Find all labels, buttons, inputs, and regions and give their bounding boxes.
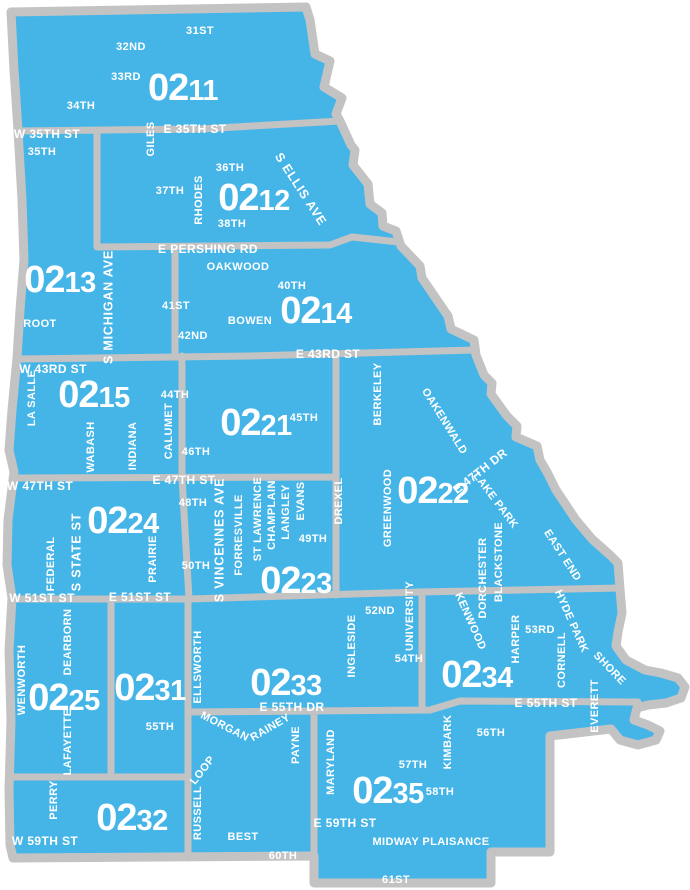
street-label-45th: 45TH	[290, 412, 319, 424]
street-label-harper: HARPER	[510, 615, 522, 664]
street-label-32nd: 32ND	[116, 41, 146, 53]
street-label-w-59th-st: W 59TH ST	[12, 834, 79, 848]
street-label-wabash: WABASH	[85, 421, 97, 472]
street-label-49th: 49TH	[299, 533, 328, 545]
street-label-48th: 48TH	[179, 497, 208, 509]
street-label-la-salle: LA SALLE	[26, 370, 38, 427]
street-label-56th: 56TH	[477, 727, 506, 739]
street-label-33rd: 33RD	[111, 71, 141, 83]
street-label-53rd: 53RD	[525, 624, 555, 636]
street-label-perry: PERRY	[48, 780, 60, 820]
street-label-rhodes: RHODES	[193, 175, 205, 224]
street-label-e-pershing-rd: E PERSHING RD	[158, 242, 258, 256]
street-label-langley: LANGLEY	[280, 484, 292, 540]
street-label-36th: 36TH	[216, 162, 245, 174]
street-label-44th: 44TH	[161, 389, 190, 401]
street-label-54th: 54TH	[395, 653, 424, 665]
street-label-60th: 60TH	[269, 850, 298, 862]
street-label-37th: 37TH	[156, 185, 185, 197]
street-label-38th: 38TH	[218, 218, 247, 230]
street-label-kimbark: KIMBARK	[442, 715, 454, 770]
street-label-best: BEST	[228, 831, 259, 843]
street-label-61st: 61ST	[382, 874, 410, 886]
street-label-blackstone: BLACKSTONE	[493, 522, 505, 602]
street-label-st-lawrence: ST LAWRENCE	[252, 477, 264, 561]
street-label-drexel: DREXEL	[333, 477, 345, 524]
street-label-ellsworth: ELLSWORTH	[192, 630, 204, 703]
street-label-dearborn: DEARBORN	[62, 609, 74, 676]
street-label-42nd: 42ND	[178, 330, 208, 342]
street-label-wenworth: WENWORTH	[16, 645, 28, 715]
street-label-maryland: MARYLAND	[325, 729, 337, 795]
street-label-w-47th-st: W 47TH ST	[7, 479, 74, 493]
street-label-giles: GILES	[145, 121, 157, 156]
street-label-52nd: 52ND	[365, 605, 395, 617]
street-label-midway-plaisance: MIDWAY PLAISANCE	[372, 836, 489, 848]
street-label-berkeley: BERKELEY	[372, 362, 384, 425]
street-label-e-55th-st: E 55TH ST	[515, 696, 578, 710]
street-label-prairie: PRAIRIE	[147, 535, 159, 582]
street-label-federal: FEDERAL	[45, 537, 57, 592]
street-label-e-35th-st: E 35TH ST	[164, 122, 227, 136]
street-label-w-35th-st: W 35TH ST	[14, 127, 81, 141]
street-label-dorchester: DORCHESTER	[477, 537, 489, 618]
street-label-35th: 35TH	[28, 146, 57, 158]
street-label-indiana: INDIANA	[127, 422, 139, 471]
street-label-ingleside: INGLESIDE	[346, 615, 358, 678]
street-label-s-vincennes-ave: S VINCENNES AVE	[212, 478, 226, 603]
street-label-greenwood: GREENWOOD	[382, 469, 394, 547]
street-label-31st: 31ST	[186, 25, 214, 37]
street-label-50th: 50TH	[182, 560, 211, 572]
street-label-e-47th-st: E 47TH ST	[153, 473, 216, 487]
street-label-calumet: CALUMET	[163, 403, 175, 460]
street-label-russell: RUSSELL	[192, 786, 204, 840]
street-label-w-51st-st: W 51ST ST	[9, 591, 75, 605]
street-label-university: UNIVERSITY	[404, 581, 416, 651]
street-label-57th: 57TH	[399, 759, 428, 771]
street-label-cornell: CORNELL	[556, 632, 568, 688]
street-label-s-michigan-ave: S MICHIGAN AVE	[101, 250, 115, 364]
street-label-e-51st-st: E 51ST ST	[109, 590, 172, 604]
beat-map-canvas: 31ST32ND33RD34THW 35TH STE 35TH STGILES3…	[0, 0, 690, 890]
street-label-champlain: CHAMPLAIN	[266, 480, 278, 550]
street-label-oakwood: OAKWOOD	[207, 261, 270, 273]
police-district-beat-map: 31ST32ND33RD34THW 35TH STE 35TH STGILES3…	[0, 0, 690, 890]
street-label-46th: 46TH	[182, 446, 211, 458]
street-label-everett: EVERETT	[589, 679, 601, 733]
street-label-bowen: BOWEN	[228, 315, 272, 327]
street-label-evans: EVANS	[295, 481, 307, 520]
street-label-root: ROOT	[23, 318, 56, 330]
street-label-34th: 34TH	[67, 100, 96, 112]
street-label-e-43rd-st: E 43RD ST	[296, 347, 361, 361]
street-label-58th: 58TH	[426, 786, 455, 798]
street-label-41st: 41ST	[162, 300, 190, 312]
street-label-55th: 55TH	[146, 721, 175, 733]
street-label-payne: PAYNE	[290, 726, 302, 764]
street-label-forresville: FORRESVILLE	[233, 494, 245, 575]
street-label-e-59th-st: E 59TH ST	[314, 816, 377, 830]
street-label-s-state-st: S STATE ST	[69, 513, 83, 591]
